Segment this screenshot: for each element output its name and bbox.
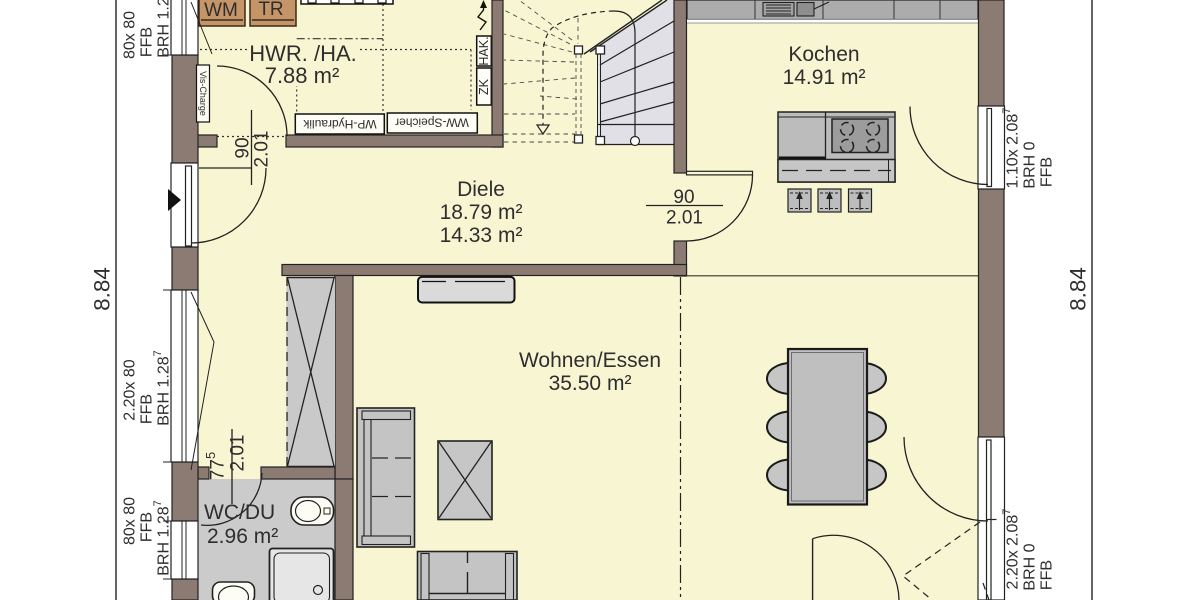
svg-text:2.01: 2.01 [666,208,703,229]
svg-text:35.50 m²: 35.50 m² [549,372,632,395]
svg-text:8.84: 8.84 [1066,267,1091,311]
svg-text:90: 90 [233,137,254,158]
svg-text:WP-Hydraulik: WP-Hydraulik [302,117,376,131]
svg-text:Vis-Charge: Vis-Charge [198,71,208,116]
svg-text:14.33 m²: 14.33 m² [440,224,523,247]
svg-text:7.88 m²: 7.88 m² [265,63,340,88]
svg-text:BRH 1.287: BRH 1.287 [152,350,173,426]
svg-text:Kochen: Kochen [788,43,859,66]
svg-text:BRH 0: BRH 0 [1022,141,1039,188]
svg-text:WW-Speicher: WW-Speicher [395,116,469,130]
svg-text:FFB: FFB [139,512,156,542]
svg-text:14.91 m²: 14.91 m² [783,66,866,89]
svg-text:Diele: Diele [457,178,505,201]
svg-text:2.20x 2.087: 2.20x 2.087 [1001,509,1022,590]
svg-text:FFB: FFB [139,394,156,424]
svg-text:2.01: 2.01 [228,435,249,472]
svg-text:FFB: FFB [1039,560,1056,590]
svg-text:90: 90 [673,187,694,208]
svg-text:BRH 1.287: BRH 1.287 [152,0,173,58]
svg-text:HAK.: HAK. [477,36,491,65]
svg-text:WM: WM [204,0,238,21]
svg-text:80x 80: 80x 80 [122,11,139,59]
svg-text:2.20x 80: 2.20x 80 [122,359,139,420]
svg-text:80x 80: 80x 80 [122,497,139,545]
svg-text:ZK: ZK [477,78,491,95]
svg-text:BRH 0: BRH 0 [1022,543,1039,590]
svg-text:BRH 1.287: BRH 1.287 [152,500,173,576]
svg-text:18.79 m²: 18.79 m² [440,201,523,224]
svg-text:8.84: 8.84 [90,267,115,311]
svg-text:1.10x 2.087: 1.10x 2.087 [1001,108,1022,189]
svg-text:Wohnen/Essen: Wohnen/Essen [519,349,661,372]
svg-text:2.96 m²: 2.96 m² [207,525,278,548]
svg-text:FFB: FFB [139,27,156,57]
svg-text:TR: TR [258,0,283,20]
svg-text:FFB: FFB [1039,157,1056,187]
svg-text:WC/DU: WC/DU [204,501,275,524]
